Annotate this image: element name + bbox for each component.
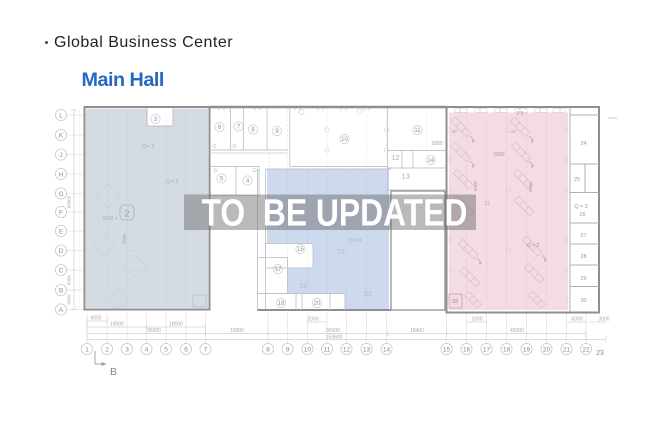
svg-text:10: 10 <box>304 346 312 353</box>
svg-text:Q = 3: Q = 3 <box>527 243 540 249</box>
svg-text:6000: 6000 <box>67 294 72 305</box>
svg-text:20: 20 <box>314 301 321 307</box>
svg-text:18000: 18000 <box>110 322 124 328</box>
svg-text:17: 17 <box>275 267 282 273</box>
svg-text:12: 12 <box>343 346 351 353</box>
svg-text:7: 7 <box>237 125 241 131</box>
svg-text:B: B <box>110 366 117 378</box>
svg-text:15: 15 <box>443 346 451 353</box>
svg-text:24: 24 <box>580 141 586 147</box>
svg-text:18400: 18400 <box>410 328 424 334</box>
svg-text:Q = 3: Q = 3 <box>349 238 362 244</box>
svg-text:21: 21 <box>563 346 571 353</box>
svg-text:11: 11 <box>324 346 331 353</box>
svg-text:29: 29 <box>580 276 586 282</box>
svg-text:Q = 3: Q = 3 <box>166 179 179 185</box>
svg-text:153600: 153600 <box>326 335 343 341</box>
svg-text:D: D <box>59 248 64 255</box>
svg-text:13: 13 <box>401 171 409 180</box>
svg-text:25: 25 <box>574 177 580 183</box>
svg-text:6: 6 <box>218 125 222 131</box>
svg-text:12: 12 <box>392 155 400 162</box>
svg-text:E: E <box>59 228 64 235</box>
svg-text:6000: 6000 <box>571 317 582 323</box>
svg-text:22: 22 <box>364 291 372 298</box>
svg-text:2: 2 <box>105 346 109 353</box>
svg-text:H: H <box>59 171 64 178</box>
svg-text:11: 11 <box>414 128 421 134</box>
svg-text:60000: 60000 <box>67 195 72 208</box>
svg-text:10: 10 <box>341 137 348 143</box>
svg-text:G: G <box>58 191 63 198</box>
svg-text:3000: 3000 <box>122 233 127 244</box>
svg-text:6000: 6000 <box>473 180 478 191</box>
svg-text:5: 5 <box>164 346 168 353</box>
svg-text:1000: 1000 <box>493 152 504 158</box>
svg-text:27: 27 <box>580 233 586 239</box>
svg-text:8: 8 <box>251 128 255 134</box>
svg-text:45°: 45° <box>452 129 459 134</box>
svg-text:2: 2 <box>124 209 129 219</box>
svg-text:9: 9 <box>286 346 290 353</box>
svg-text:L: L <box>59 112 63 119</box>
svg-text:A: A <box>59 307 64 314</box>
svg-text:6: 6 <box>184 346 188 353</box>
svg-text:45°: 45° <box>511 129 518 134</box>
svg-text:8: 8 <box>266 346 270 353</box>
svg-text:18: 18 <box>503 346 511 353</box>
svg-text:15: 15 <box>297 247 304 253</box>
svg-text:7: 7 <box>204 346 208 353</box>
svg-text:6000: 6000 <box>67 274 72 285</box>
svg-text:18000: 18000 <box>169 322 183 328</box>
svg-text:Q = 3: Q = 3 <box>142 144 155 150</box>
svg-text:6000: 6000 <box>90 316 101 322</box>
svg-text:26: 26 <box>579 212 585 218</box>
svg-text:1: 1 <box>85 346 89 353</box>
svg-text:18: 18 <box>278 301 285 307</box>
svg-text:B: B <box>59 287 63 294</box>
svg-text:22: 22 <box>582 346 590 353</box>
svg-text:J: J <box>59 152 62 159</box>
svg-text:16: 16 <box>463 346 471 353</box>
svg-text:20: 20 <box>543 346 551 353</box>
svg-text:30: 30 <box>580 298 586 304</box>
svg-text:19: 19 <box>523 346 531 353</box>
svg-text:13: 13 <box>363 346 371 353</box>
svg-text:F: F <box>59 209 63 216</box>
svg-text:45000: 45000 <box>510 328 524 334</box>
svg-text:6000: 6000 <box>528 181 533 192</box>
svg-text:14: 14 <box>427 158 434 164</box>
svg-text:17: 17 <box>483 346 491 353</box>
svg-text:3000: 3000 <box>598 317 609 323</box>
svg-text:21: 21 <box>337 249 345 256</box>
svg-text:C: C <box>59 267 64 274</box>
svg-text:Q = 3: Q = 3 <box>574 204 588 210</box>
svg-text:3: 3 <box>125 346 129 353</box>
svg-text:31: 31 <box>484 201 490 207</box>
svg-text:TO BE UPDATED: TO BE UPDATED <box>202 193 468 235</box>
svg-text:19: 19 <box>299 283 307 290</box>
svg-text:36000: 36000 <box>326 328 340 334</box>
svg-text:23: 23 <box>596 350 604 357</box>
svg-text:5: 5 <box>220 177 224 183</box>
svg-text:18000: 18000 <box>230 328 244 334</box>
svg-text:1000: 1000 <box>431 141 442 147</box>
svg-text:14: 14 <box>383 346 391 353</box>
svg-text:2000: 2000 <box>307 317 318 323</box>
svg-text:4: 4 <box>246 179 250 185</box>
svg-text:K: K <box>59 132 64 139</box>
svg-text:4: 4 <box>145 346 149 353</box>
svg-text:1000: 1000 <box>471 317 482 323</box>
svg-text:2300 +: 2300 + <box>102 216 118 222</box>
svg-text:36000: 36000 <box>147 328 161 334</box>
svg-text:28: 28 <box>580 254 586 260</box>
svg-text:9: 9 <box>275 129 279 135</box>
svg-text:32: 32 <box>452 299 458 305</box>
